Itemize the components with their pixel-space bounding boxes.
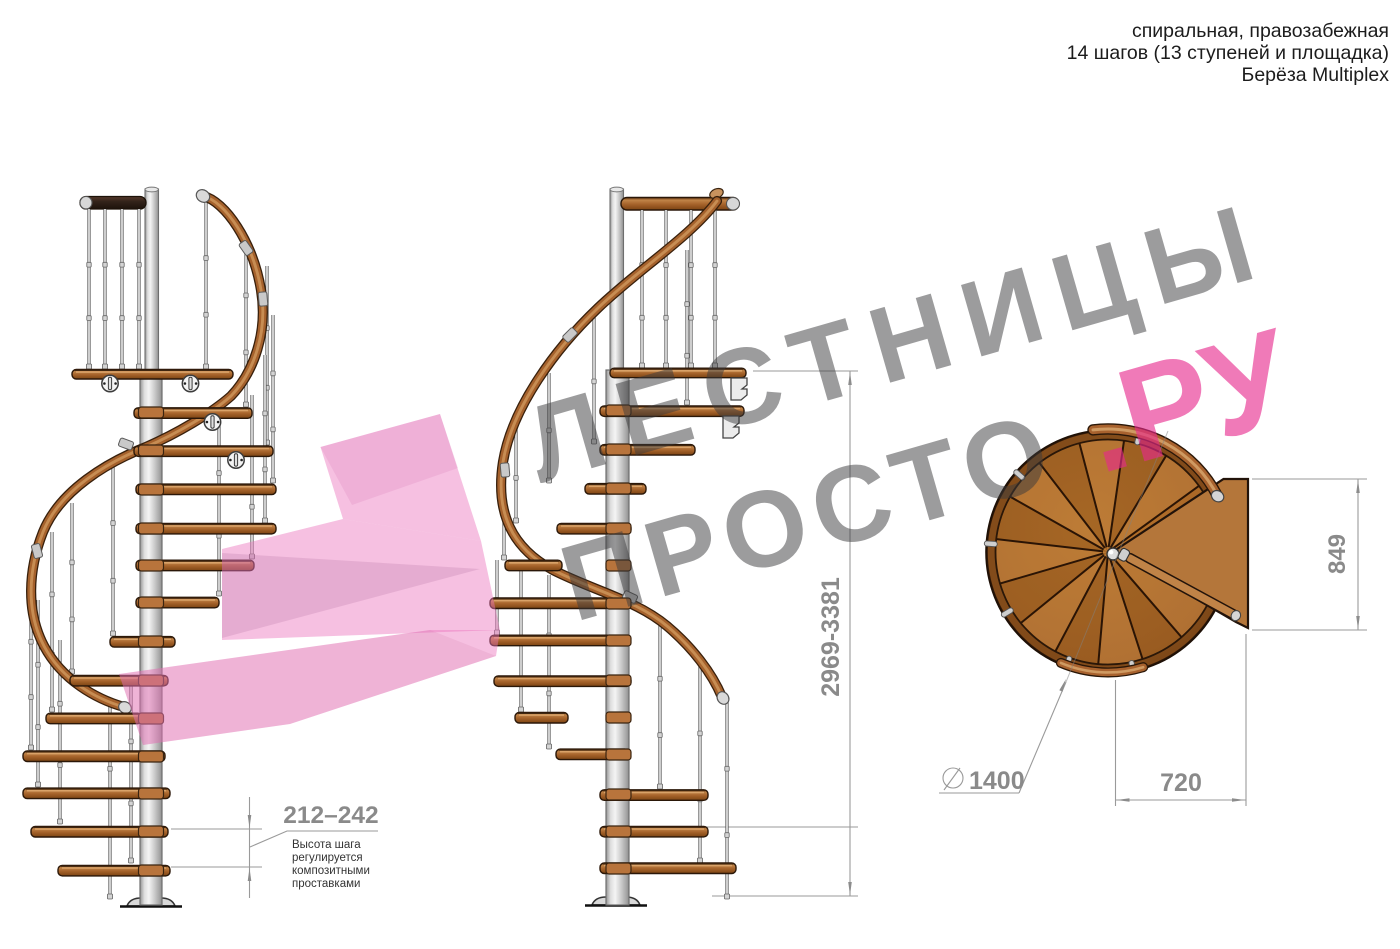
- svg-text:композитными: композитными: [292, 865, 370, 877]
- svg-text:проставками: проставками: [292, 878, 360, 890]
- svg-text:14 шагов (13 ступеней и площад: 14 шагов (13 ступеней и площадка): [1067, 42, 1389, 64]
- svg-text:1400: 1400: [969, 767, 1025, 795]
- svg-text:Высота шага: Высота шага: [292, 839, 361, 851]
- svg-text:спиральная, правозабежная: спиральная, правозабежная: [1132, 20, 1389, 42]
- svg-text:212–242: 212–242: [283, 802, 378, 829]
- svg-text:2969-3381: 2969-3381: [817, 577, 845, 697]
- svg-text:849: 849: [1324, 534, 1351, 574]
- svg-text:720: 720: [1160, 769, 1202, 797]
- svg-text:регулируется: регулируется: [292, 852, 363, 864]
- svg-text:Берёза Multiplex: Берёза Multiplex: [1242, 64, 1390, 86]
